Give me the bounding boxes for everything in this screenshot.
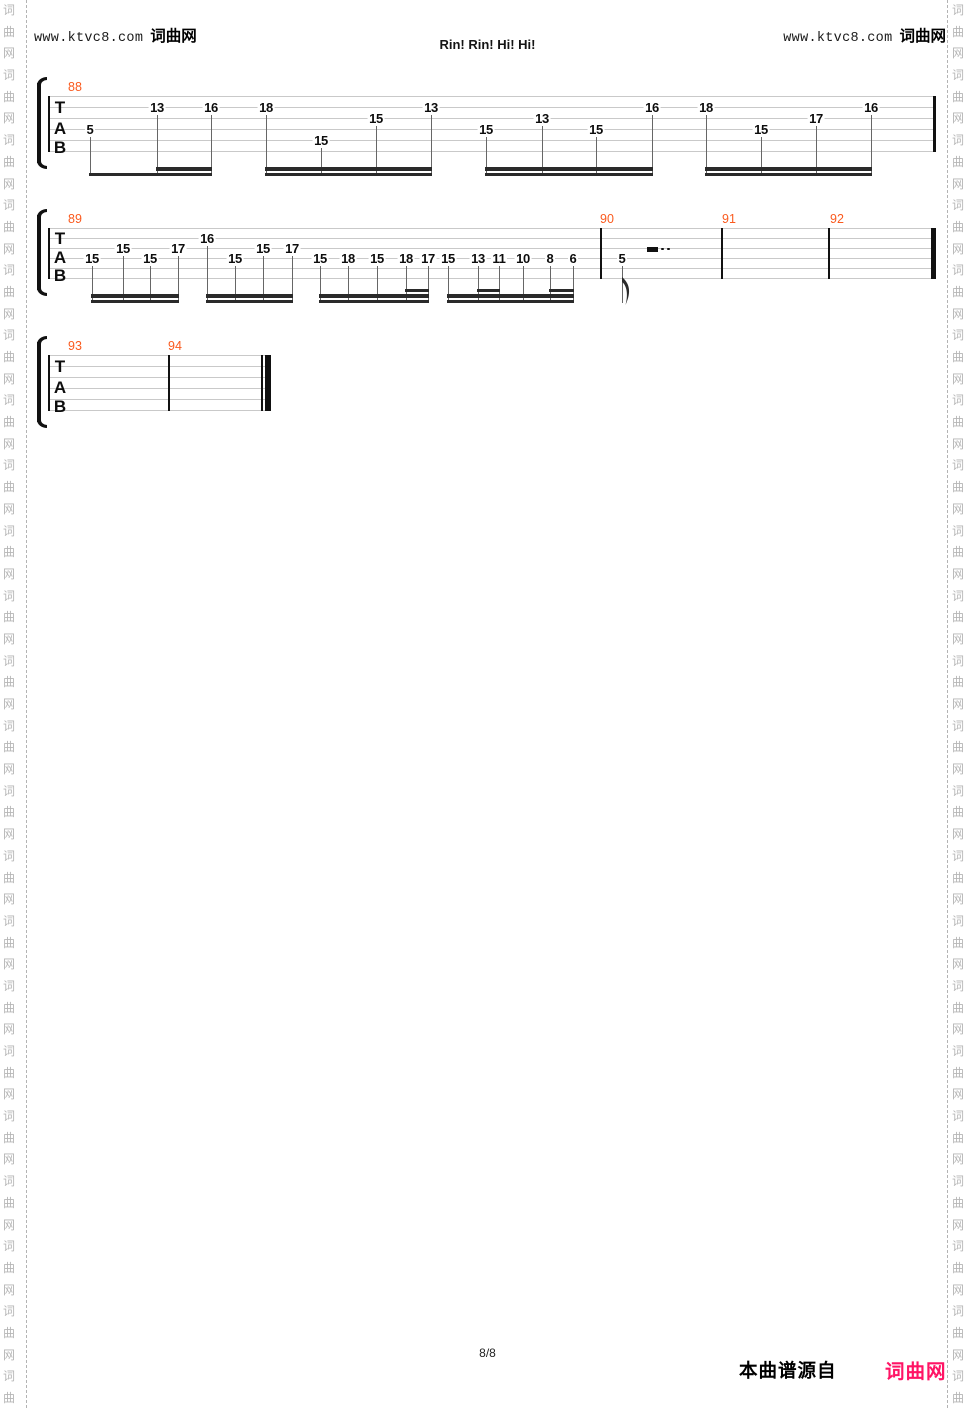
- watermark-char: 网: [1, 1084, 17, 1106]
- watermark-char: 网: [950, 1280, 966, 1302]
- watermark-char: 网: [1, 759, 17, 781]
- watermark-char: 词: [950, 716, 966, 738]
- watermark-char: 网: [1, 954, 17, 976]
- watermark-char: 词: [950, 455, 966, 477]
- tab-clef-letter: T: [55, 229, 65, 249]
- fret-number: 18: [258, 101, 275, 115]
- barline: [261, 355, 263, 411]
- fret-number: 15: [227, 252, 244, 266]
- fret-number: 15: [255, 242, 272, 256]
- watermark-char: 曲: [1, 477, 17, 499]
- watermark-char: 网: [1, 824, 17, 846]
- fret-number: 15: [478, 123, 495, 137]
- watermark-char: 网: [1, 629, 17, 651]
- watermark-char: 词: [950, 976, 966, 998]
- staff-line: [48, 278, 936, 279]
- staff-bracket-top-hook: [37, 77, 47, 86]
- watermark-char: 词: [1, 1106, 17, 1128]
- watermark-char: 词: [950, 1171, 966, 1193]
- watermark-char: 词: [950, 1236, 966, 1258]
- watermark-char: 词: [950, 521, 966, 543]
- eighth-flag-icon: [622, 277, 635, 307]
- watermark-char: 网: [950, 1019, 966, 1041]
- watermark-char: 网: [1, 1019, 17, 1041]
- watermark-char: 曲: [950, 1063, 966, 1085]
- left-dashed-border: [26, 0, 27, 1408]
- sheet-music-page: 词曲网词曲网词曲网词曲网词曲网词曲网词曲网词曲网词曲网词曲网词曲网词曲网词曲网词…: [0, 0, 975, 1408]
- watermark-char: 词: [1, 65, 17, 87]
- watermark-char: 曲: [1, 1258, 17, 1280]
- barline: [48, 355, 50, 411]
- watermark-char: 网: [950, 369, 966, 391]
- watermark-char: 网: [1, 1149, 17, 1171]
- fret-number: 11: [491, 252, 507, 266]
- staff-line: [48, 151, 936, 152]
- watermark-char: 曲: [1, 868, 17, 890]
- note-beam: [89, 173, 212, 177]
- note-beam: [156, 167, 212, 171]
- song-title: Rin! Rin! Hi! Hi!: [0, 37, 975, 52]
- watermark-char: 曲: [1, 282, 17, 304]
- tab-clef-letter: T: [55, 98, 65, 118]
- watermark-char: 曲: [1, 1323, 17, 1345]
- fret-number: 17: [420, 252, 437, 266]
- watermark-char: 词: [1, 911, 17, 933]
- watermark-char: 网: [950, 304, 966, 326]
- tab-clef-letter: B: [54, 138, 66, 158]
- staff-line: [48, 410, 270, 411]
- watermark-char: 词: [950, 651, 966, 673]
- watermark-char: 网: [1, 174, 17, 196]
- tab-clef-letter: A: [54, 378, 66, 398]
- watermark-char: 网: [950, 824, 966, 846]
- watermark-char: 曲: [950, 998, 966, 1020]
- watermark-char: 词: [950, 846, 966, 868]
- watermark-char: 网: [950, 174, 966, 196]
- watermark-char: 词: [950, 586, 966, 608]
- watermark-char: 词: [1, 1366, 17, 1388]
- fret-number: 15: [313, 134, 330, 148]
- fret-number: 10: [515, 252, 532, 266]
- watermark-char: 词: [1, 1041, 17, 1063]
- watermark-char: 词: [1, 390, 17, 412]
- measure-number: 93: [68, 340, 82, 353]
- note-beam: [265, 167, 432, 171]
- watermark-char: 网: [950, 759, 966, 781]
- watermark-char: 曲: [1, 542, 17, 564]
- watermark-char: 曲: [950, 217, 966, 239]
- barline: [48, 228, 50, 279]
- watermark-char: 词: [1, 1236, 17, 1258]
- watermark-char: 曲: [1, 87, 17, 109]
- note-beam: [206, 294, 293, 298]
- note-beam: [705, 173, 872, 177]
- measure-number: 91: [722, 213, 736, 226]
- staff-bracket-top-hook: [37, 336, 47, 345]
- fret-number: 15: [588, 123, 605, 137]
- watermark-char: 词: [950, 325, 966, 347]
- watermark-char: 词: [950, 1301, 966, 1323]
- watermark-char: 曲: [1, 1193, 17, 1215]
- note-beam: [477, 289, 500, 293]
- watermark-char: 网: [1, 434, 17, 456]
- staff-line: [48, 118, 936, 119]
- watermark-char: 网: [1, 889, 17, 911]
- watermark-char: 网: [950, 1084, 966, 1106]
- fret-number: 18: [340, 252, 357, 266]
- note-beam: [705, 167, 872, 171]
- watermark-char: 曲: [1, 1063, 17, 1085]
- watermark-char: 词: [1, 521, 17, 543]
- fret-number: 15: [440, 252, 457, 266]
- watermark-char: 曲: [950, 1258, 966, 1280]
- staff-line: [48, 107, 936, 108]
- note-beam: [319, 294, 429, 298]
- watermark-char: 曲: [950, 1323, 966, 1345]
- rest-dot: [661, 248, 664, 251]
- staff-bracket: [37, 342, 41, 422]
- barline: [933, 96, 936, 152]
- fret-number: 13: [149, 101, 166, 115]
- watermark-char: 曲: [1, 737, 17, 759]
- staff-bracket-bottom-hook: [37, 287, 47, 296]
- watermark-char: 曲: [950, 152, 966, 174]
- fret-number: 15: [115, 242, 132, 256]
- watermark-char: 网: [950, 499, 966, 521]
- barline: [931, 228, 936, 279]
- watermark-char: 词: [1, 0, 17, 22]
- watermark-char: 词: [950, 1106, 966, 1128]
- barline: [168, 355, 170, 411]
- watermark-char: 词: [950, 1041, 966, 1063]
- barline: [600, 228, 602, 279]
- rest-dot: [667, 248, 670, 251]
- tab-clef-letter: B: [54, 266, 66, 286]
- watermark-char: 曲: [950, 933, 966, 955]
- fret-number: 13: [423, 101, 440, 115]
- watermark-char: 网: [1, 694, 17, 716]
- fret-number: 17: [170, 242, 187, 256]
- left-watermark-column: 词曲网词曲网词曲网词曲网词曲网词曲网词曲网词曲网词曲网词曲网词曲网词曲网词曲网词…: [1, 0, 17, 1408]
- watermark-char: 词: [950, 781, 966, 803]
- staff-line: [48, 377, 270, 378]
- watermark-char: 曲: [950, 737, 966, 759]
- watermark-char: 词: [950, 1366, 966, 1388]
- fret-number: 16: [199, 232, 216, 246]
- watermark-char: 词: [1, 260, 17, 282]
- fret-number: 15: [84, 252, 101, 266]
- watermark-char: 曲: [950, 802, 966, 824]
- watermark-char: 曲: [1, 933, 17, 955]
- staff-line: [48, 238, 936, 239]
- note-beam: [485, 173, 653, 177]
- note-beam: [447, 294, 574, 298]
- watermark-char: 曲: [1, 998, 17, 1020]
- watermark-char: 曲: [1, 217, 17, 239]
- watermark-char: 曲: [1, 1128, 17, 1150]
- watermark-char: 网: [1, 304, 17, 326]
- watermark-char: 词: [950, 195, 966, 217]
- watermark-char: 网: [950, 1215, 966, 1237]
- barline: [48, 96, 50, 152]
- fret-number: 6: [568, 252, 578, 266]
- note-beam: [206, 300, 293, 304]
- note-beam: [447, 300, 574, 304]
- fret-number: 18: [398, 252, 415, 266]
- watermark-char: 词: [950, 260, 966, 282]
- watermark-char: 曲: [950, 477, 966, 499]
- watermark-char: 词: [1, 1301, 17, 1323]
- watermark-char: 曲: [950, 672, 966, 694]
- watermark-char: 曲: [950, 1193, 966, 1215]
- watermark-char: 曲: [1, 412, 17, 434]
- footer-brand-link[interactable]: 词曲网: [885, 1355, 947, 1384]
- watermark-char: 曲: [950, 607, 966, 629]
- watermark-char: 词: [950, 390, 966, 412]
- watermark-char: 词: [950, 65, 966, 87]
- watermark-char: 曲: [1, 802, 17, 824]
- fret-number: 16: [203, 101, 220, 115]
- measure-number: 88: [68, 81, 82, 94]
- note-beam: [405, 289, 429, 293]
- watermark-char: 词: [1, 455, 17, 477]
- watermark-char: 曲: [950, 347, 966, 369]
- watermark-char: 网: [1, 499, 17, 521]
- staff-line: [48, 399, 270, 400]
- fret-number: 5: [85, 123, 95, 137]
- fret-number: 5: [617, 252, 627, 266]
- fret-number: 16: [863, 101, 880, 115]
- watermark-char: 词: [1, 195, 17, 217]
- staff-bracket-bottom-hook: [37, 419, 47, 428]
- watermark-char: 词: [1, 976, 17, 998]
- note-beam: [549, 289, 574, 293]
- watermark-char: 词: [1, 586, 17, 608]
- watermark-char: 网: [950, 239, 966, 261]
- measure-number: 92: [830, 213, 844, 226]
- fret-number: 15: [369, 252, 386, 266]
- watermark-char: 网: [950, 1149, 966, 1171]
- right-watermark-column: 词曲网词曲网词曲网词曲网词曲网词曲网词曲网词曲网词曲网词曲网词曲网词曲网词曲网词…: [950, 0, 966, 1408]
- note-beam: [319, 300, 429, 304]
- fret-number: 17: [808, 112, 825, 126]
- tab-clef-letter: B: [54, 397, 66, 417]
- staff-bracket-bottom-hook: [37, 160, 47, 169]
- fret-number: 17: [284, 242, 301, 256]
- watermark-char: 曲: [1, 347, 17, 369]
- staff-line: [48, 366, 270, 367]
- staff-line: [48, 96, 936, 97]
- staff-line: [48, 228, 936, 229]
- note-beam: [485, 167, 653, 171]
- watermark-char: 曲: [950, 282, 966, 304]
- watermark-char: 曲: [950, 868, 966, 890]
- watermark-char: 词: [1, 846, 17, 868]
- fret-number: 15: [368, 112, 385, 126]
- watermark-char: 网: [950, 108, 966, 130]
- fret-number: 13: [534, 112, 551, 126]
- fret-number: 8: [545, 252, 555, 266]
- watermark-char: 网: [1, 564, 17, 586]
- note-beam: [265, 173, 432, 177]
- staff-bracket: [37, 215, 41, 290]
- footer-source-text: 本曲谱源自: [739, 1357, 837, 1383]
- fret-number: 15: [312, 252, 329, 266]
- half-rest-icon: [647, 247, 658, 252]
- watermark-char: 曲: [1, 607, 17, 629]
- barline: [828, 228, 830, 279]
- staff-line: [48, 388, 270, 389]
- staff-line: [48, 140, 936, 141]
- watermark-char: 曲: [1, 152, 17, 174]
- watermark-char: 网: [1, 1280, 17, 1302]
- fret-number: 15: [142, 252, 159, 266]
- watermark-char: 词: [1, 716, 17, 738]
- tab-clef-letter: A: [54, 119, 66, 139]
- fret-number: 18: [698, 101, 715, 115]
- watermark-char: 词: [1, 1171, 17, 1193]
- watermark-char: 词: [1, 130, 17, 152]
- watermark-char: 词: [950, 911, 966, 933]
- watermark-char: 网: [950, 954, 966, 976]
- tab-clef-letter: T: [55, 357, 65, 377]
- staff-bracket: [37, 83, 41, 163]
- fret-number: 16: [644, 101, 661, 115]
- watermark-char: 曲: [950, 542, 966, 564]
- note-beam: [91, 294, 179, 298]
- measure-number: 89: [68, 213, 82, 226]
- fret-number: 13: [470, 252, 487, 266]
- measure-number: 90: [600, 213, 614, 226]
- watermark-char: 词: [1, 651, 17, 673]
- watermark-char: 词: [1, 325, 17, 347]
- watermark-char: 网: [1, 369, 17, 391]
- staff-line: [48, 268, 936, 269]
- staff-bracket-top-hook: [37, 209, 47, 218]
- watermark-char: 网: [950, 629, 966, 651]
- right-dashed-border: [947, 0, 948, 1408]
- barline: [265, 355, 271, 411]
- watermark-char: 词: [950, 0, 966, 22]
- watermark-char: 曲: [1, 672, 17, 694]
- watermark-char: 网: [950, 889, 966, 911]
- watermark-char: 网: [950, 694, 966, 716]
- watermark-char: 曲: [1, 1388, 17, 1408]
- measure-number: 94: [168, 340, 182, 353]
- fret-number: 15: [753, 123, 770, 137]
- watermark-char: 词: [950, 130, 966, 152]
- watermark-char: 曲: [950, 87, 966, 109]
- watermark-char: 曲: [950, 1128, 966, 1150]
- staff-line: [48, 355, 270, 356]
- watermark-char: 词: [1, 781, 17, 803]
- watermark-char: 曲: [950, 412, 966, 434]
- watermark-char: 网: [950, 434, 966, 456]
- note-stem: [90, 136, 91, 177]
- watermark-char: 网: [1, 1215, 17, 1237]
- watermark-char: 曲: [950, 1388, 966, 1408]
- watermark-char: 网: [950, 564, 966, 586]
- watermark-char: 网: [1, 108, 17, 130]
- barline: [721, 228, 723, 279]
- watermark-char: 网: [1, 239, 17, 261]
- note-beam: [91, 300, 179, 304]
